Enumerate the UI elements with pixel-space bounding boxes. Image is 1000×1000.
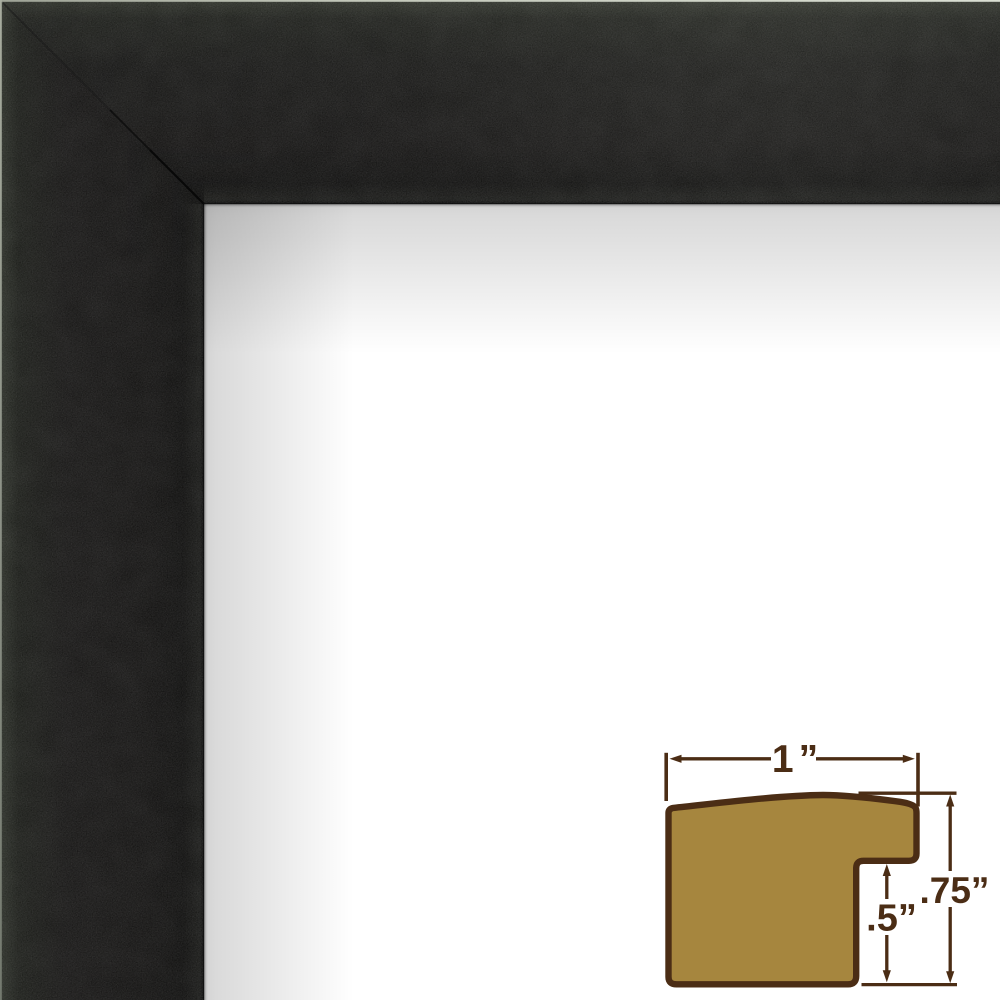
svg-text:.5”: .5” (866, 898, 917, 940)
svg-text:.75”: .75” (920, 870, 990, 911)
